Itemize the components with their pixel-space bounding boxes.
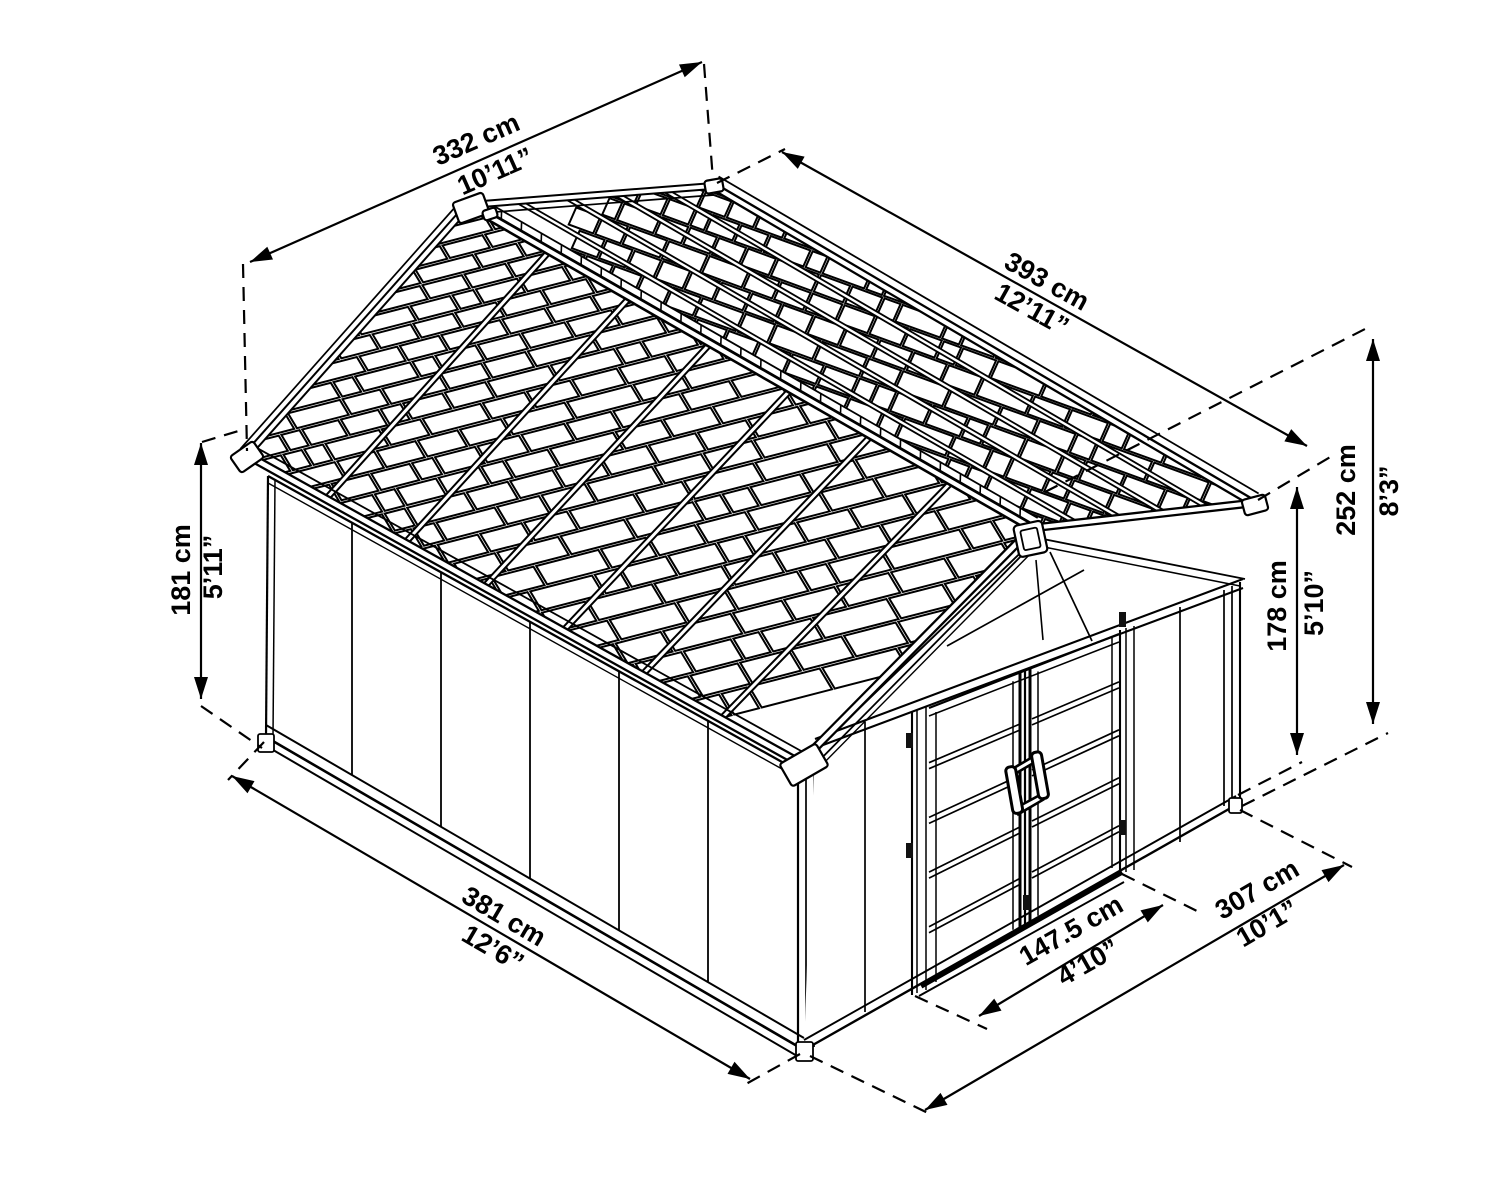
svg-text:5’11”: 5’11” [198, 535, 228, 600]
svg-text:181 cm: 181 cm [166, 524, 196, 616]
svg-text:8’3”: 8’3” [1374, 465, 1404, 516]
svg-text:252 cm: 252 cm [1331, 444, 1361, 536]
svg-text:178 cm: 178 cm [1262, 560, 1292, 652]
svg-text:5’10”: 5’10” [1299, 570, 1329, 636]
